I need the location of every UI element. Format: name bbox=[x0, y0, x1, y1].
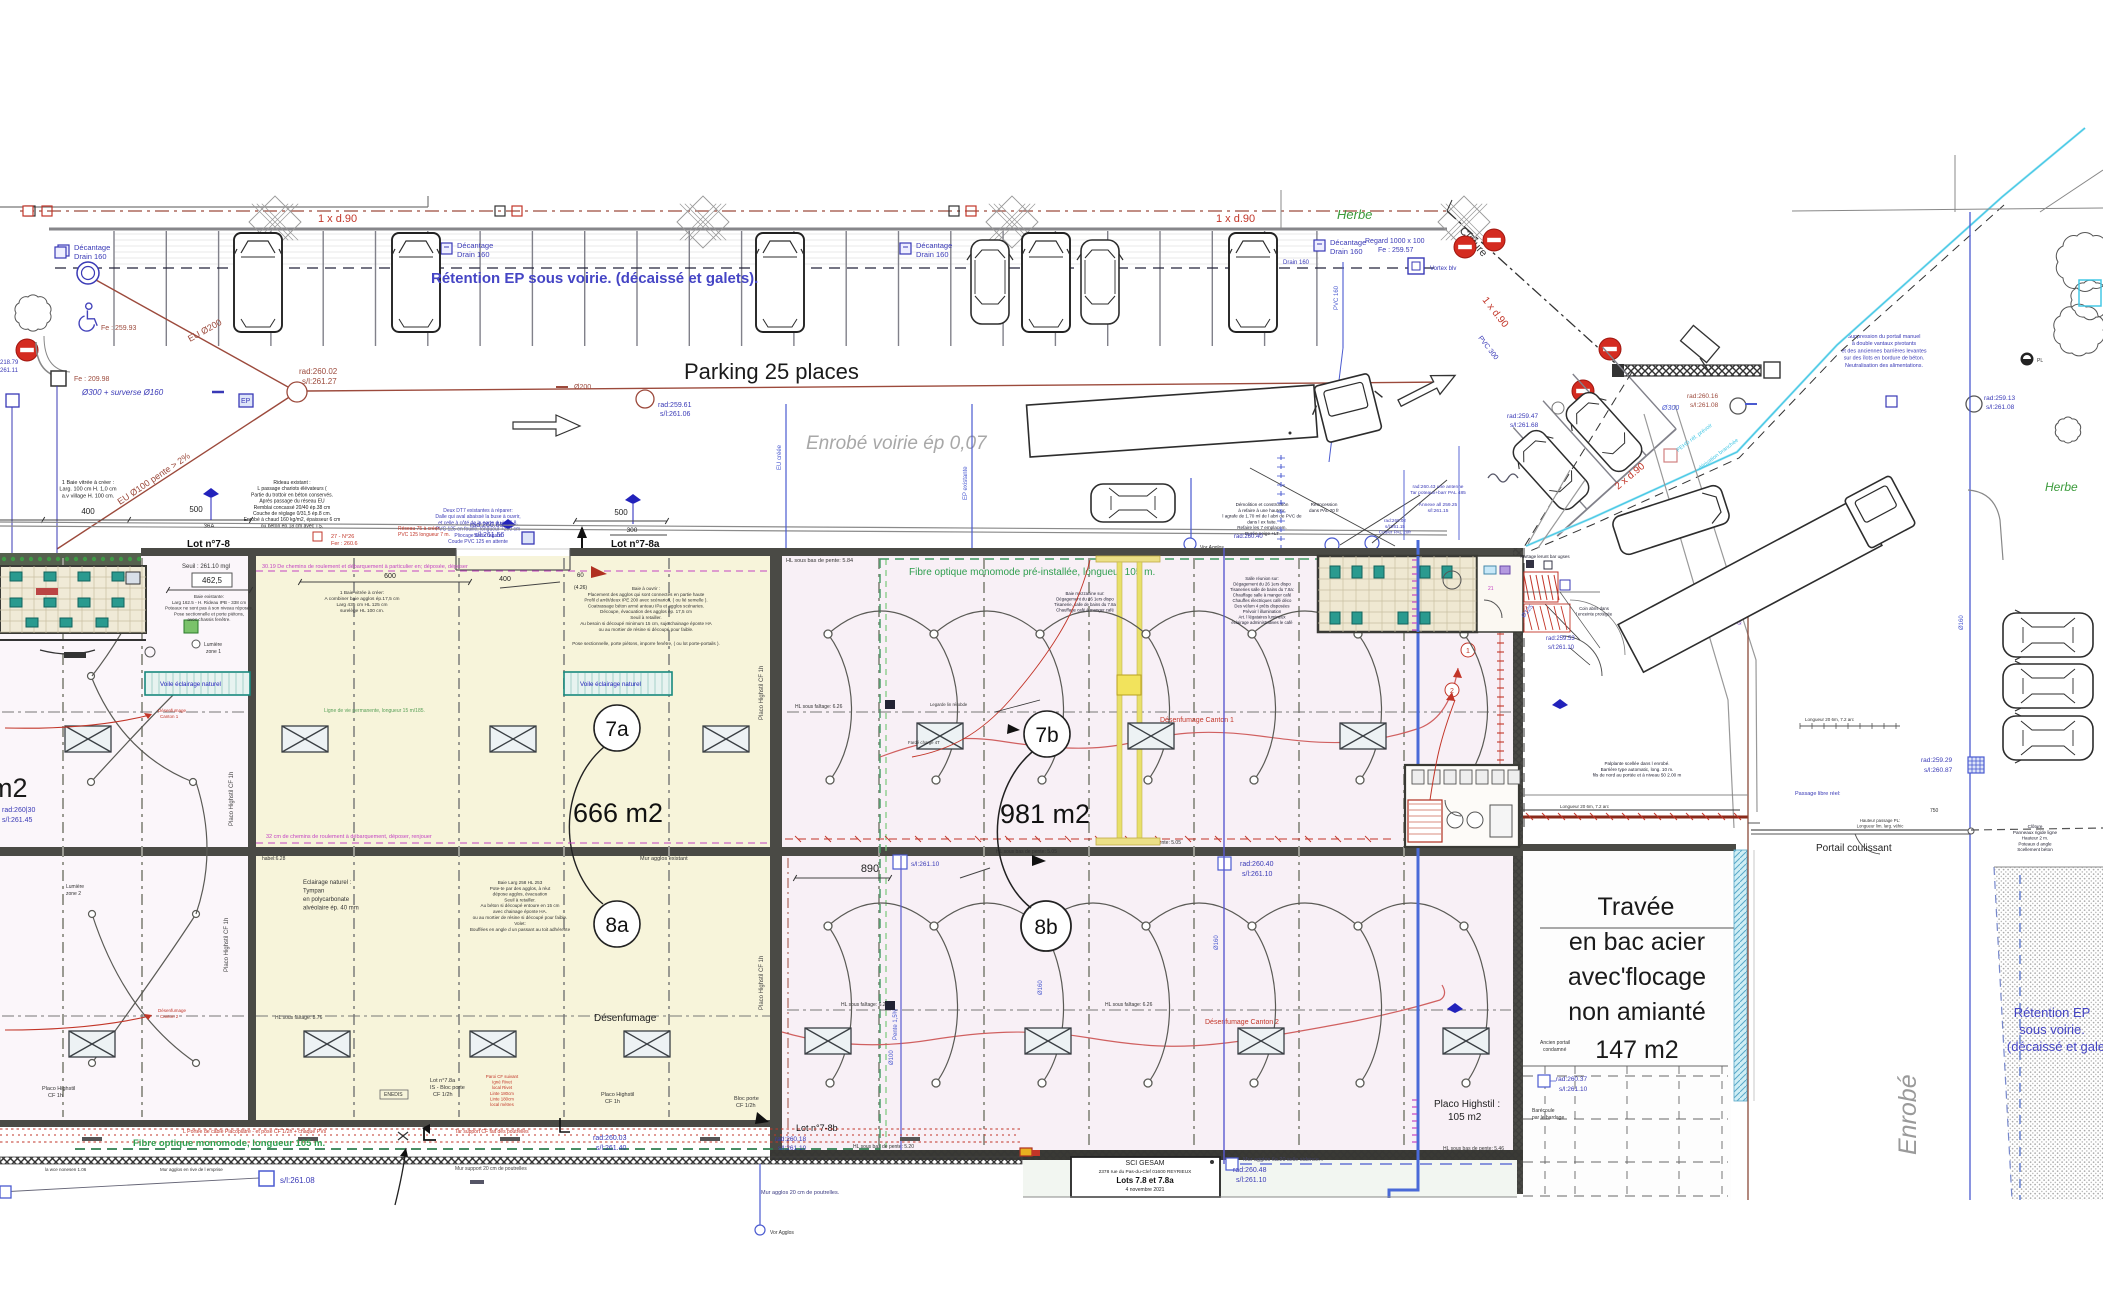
svg-text:Mur support 20 cm de poutrelle: Mur support 20 cm de poutrelles bbox=[455, 1166, 527, 1172]
svg-text:Fe : 259.57: Fe : 259.57 bbox=[1378, 247, 1414, 254]
svg-text:Herbe: Herbe bbox=[1337, 207, 1372, 222]
svg-text:rad:259.47: rad:259.47 bbox=[1507, 413, 1538, 420]
svg-text:Ø300: Ø300 bbox=[1661, 405, 1679, 412]
svg-text:Désenfumage: Désenfumage bbox=[158, 1008, 187, 1013]
svg-text:Vor Agglos: Vor Agglos bbox=[770, 1230, 794, 1236]
svg-text:Igné Rivet: Igné Rivet bbox=[492, 1080, 513, 1085]
svg-text:s/l:261.06: s/l:261.06 bbox=[660, 411, 690, 418]
svg-text:Portail coulissant: Portail coulissant bbox=[1816, 843, 1892, 854]
svg-text:Profil d arrêt/deux IPE 200 av: Profil d arrêt/deux IPE 200 avec scénari… bbox=[584, 598, 707, 603]
svg-text:Mur agglos en rive de l empris: Mur agglos en rive de l emprise bbox=[160, 1167, 223, 1172]
svg-text:L Portée de câble Placoplatre: L Portée de câble Placoplatre - et pose … bbox=[183, 1129, 327, 1135]
svg-text:(décaissé et gale: (décaissé et gale bbox=[2007, 1039, 2103, 1054]
svg-text:Placo Highstil: Placo Highstil bbox=[601, 1092, 634, 1098]
svg-text:Mur agglos 6a.20 selle sidence: Mur agglos 6a.20 selle sidence... bbox=[1243, 1157, 1324, 1163]
svg-text:Fe : 259.93: Fe : 259.93 bbox=[101, 325, 137, 332]
svg-text:1 Baie vitrée à créer :: 1 Baie vitrée à créer : bbox=[62, 480, 115, 486]
svg-text:300: 300 bbox=[627, 527, 638, 534]
svg-text:EP: EP bbox=[241, 398, 251, 405]
svg-text:EP existante: EP existante bbox=[963, 466, 969, 500]
svg-text:Barécoule: Barécoule bbox=[1532, 1108, 1555, 1114]
svg-text:7b: 7b bbox=[1035, 724, 1058, 747]
svg-text:rad:260.37: rad:260.37 bbox=[1556, 1076, 1587, 1083]
svg-text:rad:260.03: rad:260.03 bbox=[593, 1135, 627, 1142]
svg-text:avec chassis fenêtre.: avec chassis fenêtre. bbox=[187, 617, 230, 622]
svg-text:Ø160: Ø160 bbox=[1214, 935, 1220, 950]
svg-text:8a: 8a bbox=[605, 914, 629, 937]
svg-text:HL sous bas de pente: 5.84: HL sous bas de pente: 5.84 bbox=[786, 558, 853, 564]
svg-text:Regard 1000 x 100: Regard 1000 x 100 bbox=[1365, 238, 1425, 245]
svg-text:Bloc porte: Bloc porte bbox=[734, 1096, 759, 1102]
svg-text:s/l:261.10: s/l:261.10 bbox=[911, 861, 940, 868]
svg-text:Placo Highstil CF 1h: Placo Highstil CF 1h bbox=[229, 772, 235, 826]
svg-text:Dégagement du 26 1ers dispo: Dégagement du 26 1ers dispo bbox=[1056, 597, 1114, 602]
svg-text:Drain 160: Drain 160 bbox=[1330, 247, 1363, 256]
svg-text:la wce nonesen 1.06: la wce nonesen 1.06 bbox=[45, 1167, 87, 1172]
svg-text:Coude PVC 125 en attente: Coude PVC 125 en attente bbox=[448, 539, 508, 545]
svg-text:CF 1/2h: CF 1/2h bbox=[736, 1103, 756, 1109]
svg-text:Art. l légataires lumineux: Art. l légataires lumineux bbox=[1238, 615, 1286, 620]
svg-text:HL sous faîtage: 6.26: HL sous faîtage: 6.26 bbox=[1105, 1002, 1153, 1008]
svg-text:27 - N°26: 27 - N°26 bbox=[331, 534, 354, 540]
svg-text:dépose agglos, évacuation: dépose agglos, évacuation bbox=[493, 892, 548, 897]
svg-text:Baie à ouvrir :: Baie à ouvrir : bbox=[632, 586, 660, 591]
svg-text:sous voirie.: sous voirie. bbox=[2019, 1022, 2085, 1037]
svg-text:s/l:261.10: s/l:261.10 bbox=[1559, 1086, 1588, 1093]
svg-text:condamné: condamné bbox=[1543, 1047, 1567, 1053]
svg-text:Fer : 260.6: Fer : 260.6 bbox=[331, 541, 358, 547]
svg-text:s/l:261.10: s/l:261.10 bbox=[1242, 871, 1272, 878]
svg-text:s/l:261.10: s/l:261.10 bbox=[1548, 645, 1575, 651]
svg-text:Placement des agglos qui sont: Placement des agglos qui sont connectés … bbox=[588, 592, 705, 597]
svg-text:Lot n°7.8a: Lot n°7.8a bbox=[430, 1078, 456, 1084]
svg-text:Enrobé à chaud 160 kg/m2, épai: Enrobé à chaud 160 kg/m2, épaisseur 6 cm bbox=[244, 517, 341, 523]
svg-text:2378 rue du Pas-du-Clef 01600: 2378 rue du Pas-du-Clef 01600 REYRIEUX bbox=[1099, 1169, 1193, 1175]
svg-text:981 m2: 981 m2 bbox=[1000, 799, 1090, 829]
svg-text:Ø200: Ø200 bbox=[574, 384, 591, 391]
svg-text:s/l:261.15: s/l:261.15 bbox=[1385, 524, 1405, 529]
svg-text:Placo Highstil CF 1h: Placo Highstil CF 1h bbox=[1514, 946, 1520, 1000]
svg-text:Placo Highstil CF 1h: Placo Highstil CF 1h bbox=[224, 918, 230, 972]
svg-text:Legarde lin rérobde: Legarde lin rérobde bbox=[930, 702, 968, 707]
svg-text:A combiner baie agglos ép.17,5: A combiner baie agglos ép.17,5 cm bbox=[325, 596, 400, 602]
svg-text:500: 500 bbox=[189, 505, 203, 514]
svg-text:alvéolaire ép. 40 mm: alvéolaire ép. 40 mm bbox=[303, 906, 359, 912]
svg-text:rad:260.43 une antenne: rad:260.43 une antenne bbox=[1413, 484, 1464, 490]
svg-text:en polycarbonate: en polycarbonate bbox=[303, 897, 350, 903]
svg-text:8b: 8b bbox=[1034, 916, 1057, 939]
svg-text:rad:259.53: rad:259.53 bbox=[1546, 636, 1575, 642]
svg-text:Prévoir l illumination: Prévoir l illumination bbox=[1243, 609, 1282, 614]
svg-text:Lot n°7-8b: Lot n°7-8b bbox=[796, 1123, 838, 1133]
svg-text:Pote-te par des agglos, à réut: Pote-te par des agglos, à réut bbox=[490, 886, 551, 891]
svg-text:Kartage lerunt bar ugses: Kartage lerunt bar ugses bbox=[1520, 554, 1570, 559]
svg-text:Longueur 20 6m, 7.2 arc: Longueur 20 6m, 7.2 arc bbox=[1805, 717, 1855, 722]
svg-text:Lumière: Lumière bbox=[204, 642, 222, 648]
svg-text:s/l:261.10: s/l:261.10 bbox=[778, 1145, 807, 1152]
svg-text:4 novembre 2021: 4 novembre 2021 bbox=[1126, 1187, 1165, 1193]
svg-text:et des anciennes barrières lev: et des anciennes barrières levantes bbox=[1841, 348, 1926, 354]
svg-text:Seuil à retailler.: Seuil à retailler. bbox=[504, 897, 535, 902]
svg-text:Au besoin si découpé minimum 1: Au besoin si découpé minimum 15 cm, suje… bbox=[580, 621, 712, 626]
svg-text:Linte 180cm: Linte 180cm bbox=[490, 1091, 514, 1096]
svg-text:rad:260.02: rad:260.02 bbox=[1384, 518, 1406, 523]
svg-text:Voile éclairage naturel: Voile éclairage naturel bbox=[580, 681, 641, 688]
svg-text:Paroi CF suivant: Paroi CF suivant bbox=[486, 1074, 519, 1079]
svg-text:Ø160: Ø160 bbox=[1038, 980, 1044, 995]
svg-text:Larg. 100 cm H. 1,0 cm: Larg. 100 cm H. 1,0 cm bbox=[59, 487, 117, 493]
svg-text:rad:259.13: rad:259.13 bbox=[1984, 395, 2015, 402]
svg-text:Fardé chargé 4T: Fardé chargé 4T bbox=[908, 740, 940, 745]
svg-text:Tisaneries salle de bains du 7: Tisaneries salle de bains du 7.8a: bbox=[1230, 587, 1294, 592]
svg-text:PVC 160: PVC 160 bbox=[1334, 285, 1340, 310]
svg-text:Pente 1,5%: Pente 1,5% bbox=[893, 1008, 899, 1040]
svg-text:Lot n°7-8: Lot n°7-8 bbox=[187, 539, 230, 550]
svg-text:Décantage: Décantage bbox=[916, 241, 952, 250]
svg-text:ou au mortier de résine si déc: ou au mortier de résine si découpé pour … bbox=[599, 627, 694, 632]
svg-text:Seuil : 261.10 mgl: Seuil : 261.10 mgl bbox=[182, 564, 230, 570]
svg-text:à double vantaux pivotants: à double vantaux pivotants bbox=[1852, 341, 1916, 347]
svg-text:Lumière: Lumière bbox=[66, 884, 84, 890]
svg-text:Hauteur passage PL:: Hauteur passage PL: bbox=[1860, 818, 1900, 823]
svg-text:avec'flocage: avec'flocage bbox=[1568, 963, 1706, 991]
svg-text:Drain 160: Drain 160 bbox=[457, 250, 490, 259]
svg-text:Larg 435 cm HL 125 cm: Larg 435 cm HL 125 cm bbox=[336, 602, 387, 608]
svg-text:400: 400 bbox=[81, 507, 95, 516]
svg-text:Désenfumage: Désenfumage bbox=[158, 708, 187, 713]
svg-text:Neutralisation des alimentatio: Neutralisation des alimentations. bbox=[1845, 363, 1923, 369]
svg-text:rad:259.61: rad:259.61 bbox=[658, 402, 692, 409]
svg-text:Lots 7.8 et 7.8a: Lots 7.8 et 7.8a bbox=[1116, 1176, 1174, 1185]
svg-text:avec chainage éponte HA.: avec chainage éponte HA. bbox=[493, 909, 547, 914]
svg-text:Annexe all 259.25: Annexe all 259.25 bbox=[1419, 502, 1458, 508]
svg-text:Bouffées en angle d un passant: Bouffées en angle d un passant au toit a… bbox=[470, 927, 571, 932]
svg-text:s/l:261.45: s/l:261.45 bbox=[2, 817, 32, 824]
svg-text:Baie Larg 258 HL 253: Baie Larg 258 HL 253 bbox=[498, 880, 543, 885]
svg-text:Panneaux rigide ligne: Panneaux rigide ligne bbox=[2013, 830, 2058, 835]
svg-text:Des vélum 4 prêts disposées: Des vélum 4 prêts disposées bbox=[1234, 604, 1289, 609]
svg-text:HL sous bas de pente: 5.05: HL sous bas de pente: 5.05 bbox=[996, 849, 1057, 855]
svg-text:s/l:261.15: s/l:261.15 bbox=[1428, 508, 1449, 514]
svg-text:s/l:261.08: s/l:261.08 bbox=[280, 1176, 315, 1185]
svg-text:Désenfumage: Désenfumage bbox=[594, 1013, 657, 1024]
svg-text:500: 500 bbox=[614, 508, 628, 517]
svg-text:m2: m2 bbox=[0, 773, 28, 803]
svg-text:Passage libre réel:: Passage libre réel: bbox=[1795, 791, 1841, 797]
svg-text:Tympan: Tympan bbox=[303, 889, 324, 895]
svg-text:non amianté: non amianté bbox=[1568, 998, 1706, 1026]
svg-text:rad:259.29: rad:259.29 bbox=[1921, 757, 1952, 764]
svg-text:Ø300 + surverse Ø160: Ø300 + surverse Ø160 bbox=[81, 388, 164, 397]
svg-text:Eclairage naturel :: Eclairage naturel : bbox=[303, 880, 352, 886]
svg-text:zone 1: zone 1 bbox=[206, 649, 221, 655]
svg-text:éclairage administratives le c: éclairage administratives le café bbox=[1231, 620, 1293, 625]
svg-text:rad:260|30: rad:260|30 bbox=[2, 807, 35, 814]
svg-text:CF 1/2h: CF 1/2h bbox=[433, 1092, 453, 1098]
svg-text:Décantage: Décantage bbox=[74, 243, 110, 252]
svg-text:CF 1h: CF 1h bbox=[48, 1093, 63, 1099]
svg-text:ou au mortier de résine si déc: ou au mortier de résine si découpé pour … bbox=[473, 915, 568, 920]
svg-text:Rideau existant :: Rideau existant : bbox=[273, 480, 310, 486]
svg-text:l agrafe de 1.70 ml de l abri: l agrafe de 1.70 ml de l abri de PVC de bbox=[1222, 514, 1302, 519]
svg-text:Chauffes électriques café déco: Chauffes électriques café déco bbox=[1233, 598, 1293, 603]
svg-text:rad:260.40: rad:260.40 bbox=[1234, 534, 1263, 540]
svg-text:Hauteur 2 m.: Hauteur 2 m. bbox=[2022, 836, 2049, 841]
svg-text:HL sous faîtage: 6.26: HL sous faîtage: 6.26 bbox=[795, 704, 843, 710]
svg-text:7a: 7a bbox=[605, 718, 629, 741]
svg-text:rad:260.48: rad:260.48 bbox=[1233, 1167, 1267, 1174]
svg-text:Ligne de vie permanente, longu: Ligne de vie permanente, longueur 15 m/1… bbox=[324, 708, 425, 714]
svg-text:Coatrassage béton armé anteau: Coatrassage béton armé anteau IPa et agg… bbox=[588, 603, 704, 608]
svg-text:Seuil à retailler.: Seuil à retailler. bbox=[630, 615, 661, 620]
svg-text:HL sous bas de pente: 5.46: HL sous bas de pente: 5.46 bbox=[1443, 1146, 1504, 1152]
svg-text:en bac acier: en bac acier bbox=[1569, 928, 1705, 956]
svg-text:Tar support CF fait des poutre: Tar support CF fait des poutrelles bbox=[455, 1129, 529, 1135]
svg-text:Pose sectionnelle et porte pié: Pose sectionnelle et porte piétons, bbox=[174, 611, 244, 616]
svg-text:Drain 160: Drain 160 bbox=[1283, 260, 1310, 266]
svg-text:Larg 162.5 - H. Rideau IPB - 3: Larg 162.5 - H. Rideau IPB - 338 cm bbox=[172, 600, 246, 605]
svg-text:Ancien portail: Ancien portail bbox=[1540, 1040, 1570, 1046]
svg-text:s/l:261.27: s/l:261.27 bbox=[302, 377, 337, 386]
svg-text:dans l ex faite.: dans l ex faite. bbox=[1247, 519, 1277, 524]
svg-text:par le bardage: par le bardage bbox=[1532, 1115, 1564, 1121]
svg-text:Drain 160: Drain 160 bbox=[916, 250, 949, 259]
svg-text:Couler PAL 20fr: Couler PAL 20fr bbox=[1379, 530, 1412, 535]
svg-text:1 x d.90: 1 x d.90 bbox=[318, 213, 357, 225]
svg-text:local mètres: local mètres bbox=[490, 1102, 514, 1107]
svg-text:30.19 De chemins de roulement: 30.19 De chemins de roulement et débarqu… bbox=[262, 564, 468, 570]
svg-text:rad:260.02: rad:260.02 bbox=[299, 367, 338, 376]
svg-text:surelège HL 100 cm.: surelège HL 100 cm. bbox=[340, 608, 384, 614]
svg-text:Décantage: Décantage bbox=[1330, 238, 1366, 247]
svg-text:rad:260.18: rad:260.18 bbox=[775, 1136, 806, 1143]
svg-text:Dégagement du 26 1ers dispo: Dégagement du 26 1ers dispo bbox=[1233, 582, 1291, 587]
svg-text:l enceinte protégée: l enceinte protégée bbox=[1576, 612, 1613, 617]
svg-text:s/l:261.40: s/l:261.40 bbox=[596, 1145, 626, 1152]
svg-text:Canton 1: Canton 1 bbox=[160, 714, 179, 719]
svg-text:Couche de réglage 0/31,5 ép.8: Couche de réglage 0/31,5 ép.8 cm. bbox=[253, 511, 331, 517]
svg-text:local Rivet: local Rivet bbox=[492, 1085, 513, 1090]
svg-text:Canton 2: Canton 2 bbox=[160, 1014, 179, 1019]
svg-text:Pose sectionnelle, porte piéto: Pose sectionnelle, porte piétons, imporr… bbox=[572, 641, 720, 646]
svg-text:Volet:: Volet: bbox=[514, 921, 526, 926]
svg-text:Voile éclairage naturel: Voile éclairage naturel bbox=[160, 681, 221, 688]
svg-text:Mur agglos 20 cm de poutrelles: Mur agglos 20 cm de poutrelles. bbox=[761, 1190, 840, 1196]
svg-text:Coin abris dans: Coin abris dans bbox=[1579, 606, 1609, 611]
svg-text:Tisanerie, salle de bains du 7: Tisanerie, salle de bains du 7.8a bbox=[1054, 602, 1116, 607]
svg-text:Partie du trottoir en béton co: Partie du trottoir en béton conservés. bbox=[251, 492, 333, 498]
svg-text:rad:260.16: rad:260.16 bbox=[1687, 393, 1718, 400]
svg-text:dans PAL 20 fr: dans PAL 20 fr bbox=[1309, 508, 1339, 513]
svg-text:Linte 180cm: Linte 180cm bbox=[490, 1096, 514, 1101]
svg-text:HL sous faîtage: 6.26: HL sous faîtage: 6.26 bbox=[841, 1002, 889, 1008]
svg-text:Remblai concassé 20/40 ép.38 c: Remblai concassé 20/40 ép.38 cm bbox=[254, 505, 331, 511]
svg-text:Ø100: Ø100 bbox=[889, 1050, 895, 1065]
svg-text:Décantage: Décantage bbox=[457, 241, 493, 250]
svg-text:Découpe, évacuation des agglos: Découpe, évacuation des agglos ép. 17,5 … bbox=[600, 609, 692, 614]
svg-text:21: 21 bbox=[1488, 586, 1494, 592]
svg-text:Ø160: Ø160 bbox=[1959, 615, 1965, 630]
svg-text:Placo Highstil CF 1h: Placo Highstil CF 1h bbox=[759, 666, 765, 720]
svg-text:sur des îlots en bordure de bé: sur des îlots en bordure de béton. bbox=[1844, 356, 1925, 362]
svg-text:habel:6.28: habel:6.28 bbox=[262, 856, 286, 862]
svg-text:Mur agglos existant: Mur agglos existant bbox=[640, 856, 688, 862]
svg-text:Lot n°7-8a: Lot n°7-8a bbox=[611, 539, 660, 550]
svg-text:s/l:260.87: s/l:260.87 bbox=[1924, 767, 1953, 774]
svg-text:zone 2: zone 2 bbox=[66, 891, 81, 897]
svg-text:(4.26): (4.26) bbox=[574, 585, 587, 591]
svg-text:462,5: 462,5 bbox=[202, 576, 223, 585]
svg-text:s/l:261.08: s/l:261.08 bbox=[1690, 402, 1719, 409]
svg-text:fils de nord au portée et à ni: fils de nord au portée et à niveau 50 2.… bbox=[1593, 773, 1682, 778]
svg-text:400: 400 bbox=[499, 576, 511, 583]
svg-text:a.v village H. 100 cm.: a.v village H. 100 cm. bbox=[62, 493, 115, 499]
svg-text:EU créée: EU créée bbox=[777, 444, 783, 470]
svg-text:CF 1h: CF 1h bbox=[605, 1099, 620, 1105]
svg-text:Parking 25 places: Parking 25 places bbox=[684, 359, 859, 384]
svg-text:750: 750 bbox=[1930, 808, 1939, 814]
svg-text:rad:260.40: rad:260.40 bbox=[1240, 861, 1274, 868]
svg-text:IS - Bloc porte: IS - Bloc porte bbox=[430, 1085, 465, 1091]
svg-text:1: 1 bbox=[1466, 648, 1470, 655]
svg-text:1 x d.90: 1 x d.90 bbox=[1216, 213, 1255, 225]
svg-text:Au béton si découpé entoure en: Au béton si découpé entoure en 15 cm bbox=[481, 903, 560, 908]
svg-text:Désenfumage Canton 2: Désenfumage Canton 2 bbox=[1205, 1019, 1279, 1026]
svg-text:Fibre optique monomode, longue: Fibre optique monomode, longueur 105 m. bbox=[133, 1138, 325, 1149]
svg-text:Baie mezzanine sur:: Baie mezzanine sur: bbox=[1066, 591, 1105, 596]
svg-text:rad:260.65: rad:260.65 bbox=[470, 522, 504, 529]
svg-text:600: 600 bbox=[384, 573, 396, 580]
svg-text:s/l:261.10: s/l:261.10 bbox=[1236, 1177, 1266, 1184]
svg-text:Enrobé: Enrobé bbox=[1894, 1074, 1922, 1155]
svg-text:Barrière type automatic, long.: Barrière type automatic, long. 10 m. bbox=[1601, 767, 1674, 772]
svg-text:Chauffage salle à manger café: Chauffage salle à manger café bbox=[1233, 593, 1292, 598]
svg-text:Enrobé voirie ép 0,07: Enrobé voirie ép 0,07 bbox=[806, 433, 988, 454]
svg-text:Fe : 209.98: Fe : 209.98 bbox=[74, 376, 110, 383]
svg-text:Palplante scellée dans l enrob: Palplante scellée dans l enrobé. bbox=[1604, 761, 1669, 766]
svg-text:Après passage du réseau EU: Après passage du réseau EU bbox=[259, 499, 325, 505]
svg-text:Scellement béton: Scellement béton bbox=[2017, 847, 2053, 852]
svg-text:105 m2: 105 m2 bbox=[1448, 1112, 1482, 1123]
svg-text:261.11: 261.11 bbox=[0, 368, 19, 374]
svg-text:147 m2: 147 m2 bbox=[1595, 1036, 1678, 1064]
svg-text:Longueur 20 6m, 7.2 arc: Longueur 20 6m, 7.2 arc bbox=[1560, 804, 1610, 809]
svg-text:ENEDIS: ENEDIS bbox=[384, 1092, 403, 1098]
svg-text:Drain 160: Drain 160 bbox=[74, 252, 107, 261]
svg-text:Placo Highstil :: Placo Highstil : bbox=[1434, 1099, 1500, 1110]
svg-text:60: 60 bbox=[577, 573, 584, 579]
svg-text:s/l:261.56: s/l:261.56 bbox=[474, 532, 504, 539]
svg-text:Travée: Travée bbox=[1598, 893, 1675, 921]
svg-text:L passage chariots élévateurs: L passage chariots élévateurs ( bbox=[257, 486, 327, 492]
svg-text:666 m2: 666 m2 bbox=[573, 798, 663, 828]
svg-text:Rétention EP sous voirie. (déc: Rétention EP sous voirie. (décaissé et g… bbox=[431, 270, 758, 287]
svg-text:Longueur lim. larg. véhic: Longueur lim. larg. véhic bbox=[1857, 824, 1905, 829]
svg-text:s/l:261.08: s/l:261.08 bbox=[1986, 404, 2015, 411]
svg-text:s/l:261.68: s/l:261.68 bbox=[1510, 422, 1539, 429]
svg-text:Tar poteaux+barr PAL 485: Tar poteaux+barr PAL 485 bbox=[1410, 490, 1466, 496]
svg-text:Poteaux ne sont pas à son nive: Poteaux ne sont pas à son niveau réposés… bbox=[165, 606, 253, 611]
svg-text:Baie existante:: Baie existante: bbox=[194, 594, 224, 599]
svg-text:1 Baie vitrée à créer:: 1 Baie vitrée à créer: bbox=[340, 590, 384, 596]
svg-text:Placo Highstil: Placo Highstil bbox=[42, 1086, 75, 1092]
svg-text:SCI GESAM: SCI GESAM bbox=[1126, 1160, 1165, 1167]
svg-text:Chauffage café à manger café: Chauffage café à manger café bbox=[1056, 608, 1114, 613]
svg-text:Clôture: Clôture bbox=[2028, 824, 2043, 829]
svg-text:Herbe: Herbe bbox=[2045, 480, 2078, 494]
svg-text:890: 890 bbox=[861, 863, 879, 875]
svg-text:Poteaux d angle: Poteaux d angle bbox=[2018, 841, 2052, 846]
svg-text:Salle réunion sur:: Salle réunion sur: bbox=[1245, 576, 1278, 581]
svg-text:PL: PL bbox=[2037, 358, 2043, 364]
svg-text:Placo Highstil CF 1h: Placo Highstil CF 1h bbox=[759, 956, 765, 1010]
svg-text:Vortex blv: Vortex blv bbox=[1430, 266, 1456, 272]
svg-text:Refaire les 7 emplacem.: Refaire les 7 emplacem. bbox=[1237, 525, 1287, 530]
svg-text:32 cm de chemins de roulement: 32 cm de chemins de roulement à débarque… bbox=[266, 834, 432, 840]
svg-text:Rétention EP: Rétention EP bbox=[2014, 1005, 2091, 1020]
svg-text:Deux DT7 existantes à réparer:: Deux DT7 existantes à réparer: bbox=[443, 508, 512, 514]
svg-text:PVC 125 longueur 7 m.: PVC 125 longueur 7 m. bbox=[398, 532, 450, 538]
svg-text:218.79: 218.79 bbox=[0, 360, 19, 366]
